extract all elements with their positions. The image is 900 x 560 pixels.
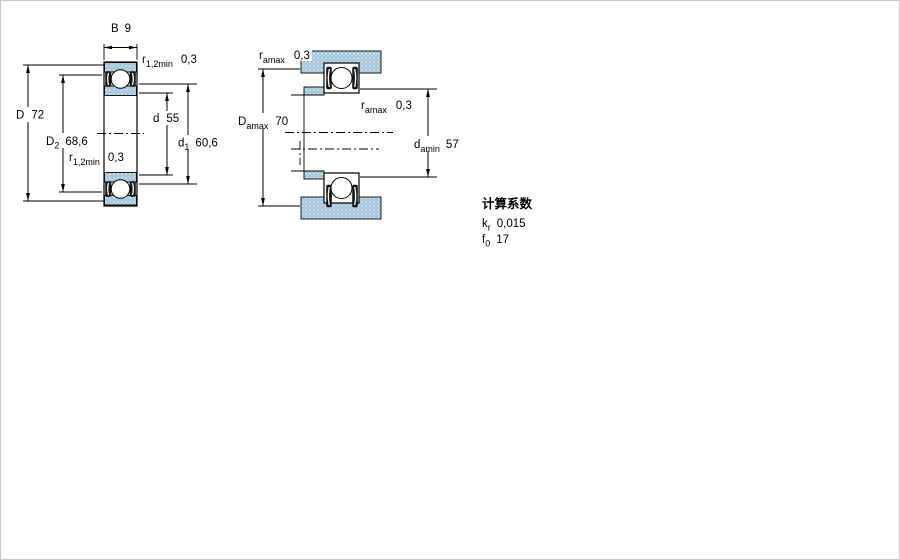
- dim-d-label: d55: [153, 113, 179, 125]
- seal-top-left: [106, 72, 112, 87]
- seal-bottom-left: [106, 182, 112, 197]
- dim-ramax-mid-label: ramax0,3: [361, 100, 412, 115]
- seal-right-view-bottom-right: [353, 185, 358, 207]
- dim-D2-label: D268,6: [46, 136, 88, 151]
- calculation-factors: 计算系数 kr0,015 f017: [482, 196, 533, 249]
- shaft-shoulder-top: [304, 87, 324, 95]
- dim-d: d55: [139, 93, 180, 175]
- shaft-shoulder-bottom: [304, 171, 324, 179]
- ball-bottom: [111, 180, 130, 199]
- dim-B-label: B9: [111, 23, 131, 35]
- bearing-cross-section-view: B9 D72 D268,6 r1,2min0,3 r1,2min0: [13, 23, 218, 206]
- dim-D2: D268,6: [44, 75, 102, 192]
- dim-r-top-label: r1,2min0,3: [142, 54, 197, 69]
- ball-top: [111, 70, 130, 89]
- seal-right-view-top-right: [353, 67, 358, 89]
- bearing-dimension-drawing: B9 D72 D268,6 r1,2min0,3 r1,2min0: [0, 0, 900, 560]
- seal-bottom-right: [130, 182, 136, 197]
- dim-d1: d160,6: [139, 84, 218, 184]
- mounted-bearing-view: ramax0,3 Damax70 ramax0,3 damin57: [236, 47, 459, 219]
- calc-factor-kr: kr0,015: [482, 218, 526, 233]
- calc-factor-f0: f017: [482, 234, 509, 249]
- dim-B: B9: [104, 23, 137, 60]
- seal-top-right: [130, 72, 136, 87]
- dim-Damax: Damax70: [236, 69, 300, 206]
- calculation-factors-title: 计算系数: [482, 196, 533, 211]
- drawing-canvas: B9 D72 D268,6 r1,2min0,3 r1,2min0: [1, 1, 899, 559]
- ball-right-view-top: [331, 68, 352, 89]
- ball-right-view-bottom: [331, 178, 352, 199]
